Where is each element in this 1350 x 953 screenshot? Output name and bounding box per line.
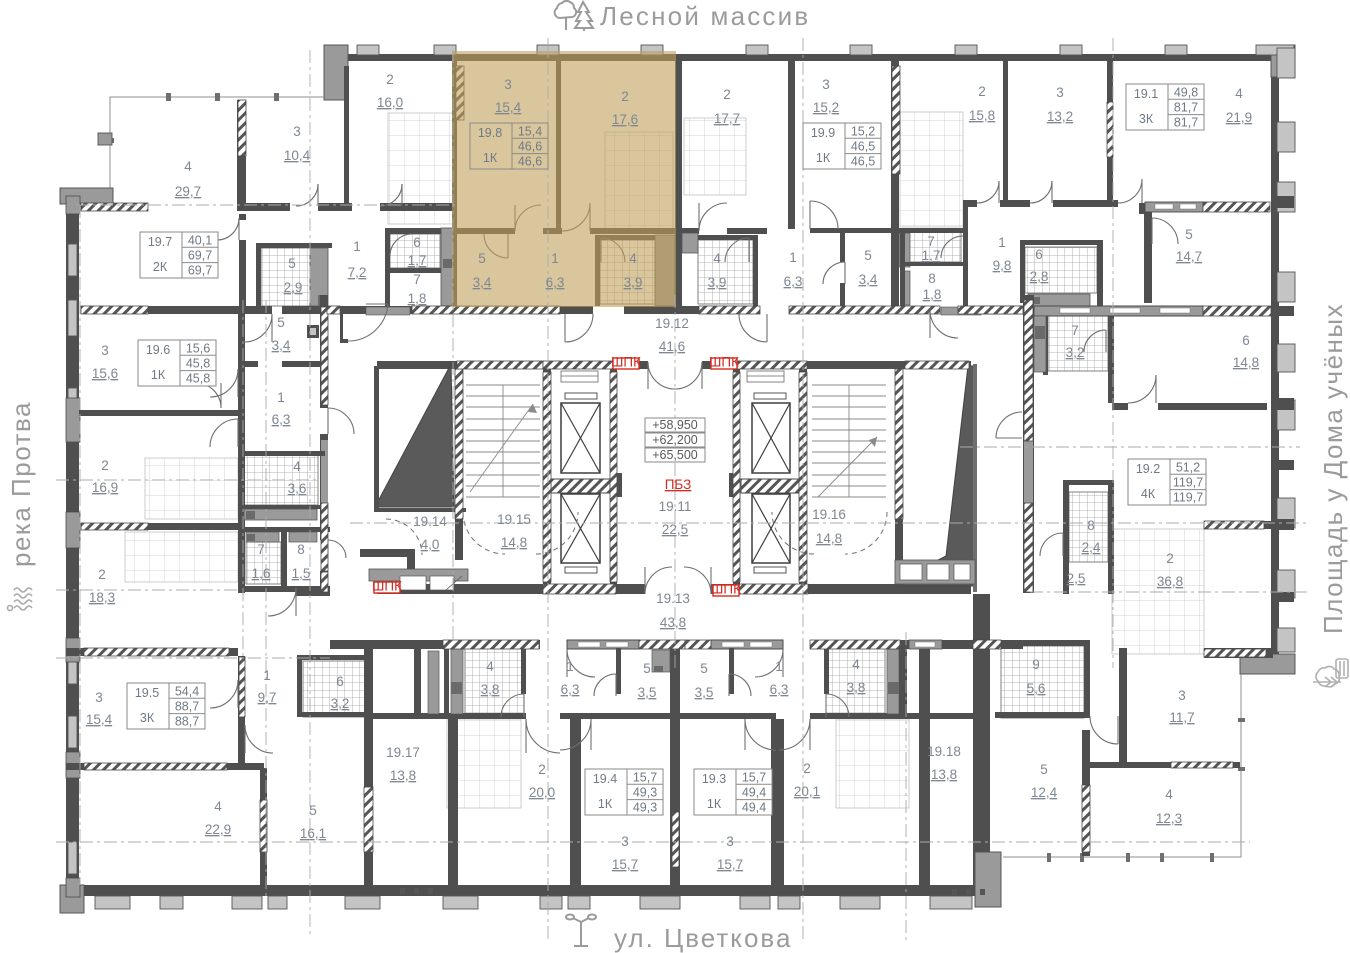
svg-text:15,4: 15,4 [518, 125, 542, 139]
svg-text:15,6: 15,6 [92, 366, 118, 381]
svg-text:16,1: 16,1 [300, 826, 326, 841]
svg-text:3: 3 [621, 834, 629, 849]
svg-text:49,4: 49,4 [742, 786, 766, 800]
svg-text:45,8: 45,8 [186, 372, 210, 386]
svg-text:4: 4 [1235, 86, 1243, 101]
svg-text:3,4: 3,4 [473, 275, 492, 290]
svg-text:14,8: 14,8 [501, 535, 527, 550]
svg-text:4: 4 [214, 799, 222, 814]
svg-text:8: 8 [1087, 518, 1095, 533]
svg-text:1,6: 1,6 [252, 566, 271, 581]
svg-text:19.13: 19.13 [656, 591, 690, 606]
svg-text:46,6: 46,6 [518, 155, 542, 169]
svg-text:3,2: 3,2 [331, 696, 350, 711]
svg-text:ПБЗ: ПБЗ [665, 477, 692, 492]
svg-text:1К: 1К [816, 151, 831, 165]
svg-text:3,2: 3,2 [1066, 345, 1085, 360]
svg-text:9,7: 9,7 [258, 690, 277, 705]
svg-text:88,7: 88,7 [175, 715, 199, 729]
svg-text:17,7: 17,7 [714, 111, 740, 126]
svg-text:ШПК: ШПК [372, 579, 402, 594]
svg-text:8: 8 [928, 271, 936, 286]
svg-text:3,8: 3,8 [481, 682, 500, 697]
svg-text:51,2: 51,2 [1176, 461, 1200, 475]
svg-text:16,0: 16,0 [377, 95, 403, 110]
svg-text:1К: 1К [598, 797, 613, 811]
svg-text:2К: 2К [153, 260, 168, 274]
svg-text:6,3: 6,3 [770, 682, 789, 697]
svg-text:12,4: 12,4 [1031, 785, 1058, 800]
svg-text:ШПК: ШПК [709, 355, 739, 370]
svg-text:13,8: 13,8 [931, 767, 957, 782]
svg-text:15,4: 15,4 [495, 100, 522, 115]
svg-text:12,3: 12,3 [1156, 811, 1182, 826]
svg-text:14,7: 14,7 [1176, 249, 1202, 264]
svg-text:3: 3 [1178, 688, 1186, 703]
svg-text:9: 9 [1032, 657, 1040, 672]
svg-text:+58,950: +58,950 [652, 418, 698, 432]
svg-text:7: 7 [413, 272, 421, 287]
svg-text:3: 3 [95, 690, 103, 705]
svg-text:4: 4 [293, 459, 301, 474]
svg-text:11,7: 11,7 [1169, 710, 1194, 725]
svg-text:2: 2 [98, 567, 106, 582]
svg-text:19.14: 19.14 [413, 514, 447, 529]
svg-text:ул. Цветкова: ул. Цветкова [614, 923, 792, 953]
svg-text:5: 5 [700, 661, 708, 676]
svg-text:3,5: 3,5 [695, 685, 714, 700]
svg-text:4К: 4К [1141, 487, 1156, 501]
svg-text:69,7: 69,7 [188, 249, 212, 263]
svg-text:19.3: 19.3 [702, 772, 726, 786]
svg-text:2: 2 [723, 87, 731, 102]
svg-text:1,8: 1,8 [408, 291, 427, 306]
svg-text:20,1: 20,1 [794, 784, 820, 799]
svg-text:81,7: 81,7 [1174, 101, 1198, 115]
svg-text:88,7: 88,7 [175, 700, 199, 714]
svg-text:Лесной массив: Лесной массив [600, 1, 810, 31]
svg-text:5: 5 [309, 803, 317, 818]
svg-text:4: 4 [713, 251, 721, 266]
svg-text:1: 1 [566, 659, 574, 674]
svg-text:14,8: 14,8 [1233, 355, 1259, 370]
svg-text:21,9: 21,9 [1226, 110, 1252, 125]
svg-text:13,2: 13,2 [1047, 109, 1073, 124]
svg-text:19.11: 19.11 [659, 499, 692, 514]
svg-text:22,9: 22,9 [205, 822, 231, 837]
svg-text:19.12: 19.12 [655, 316, 689, 331]
svg-text:6: 6 [1035, 247, 1043, 262]
svg-text:49,4: 49,4 [742, 801, 766, 815]
svg-text:1: 1 [551, 251, 559, 266]
svg-text:1: 1 [263, 668, 271, 683]
svg-text:19.2: 19.2 [1136, 462, 1160, 476]
svg-text:45,8: 45,8 [186, 357, 210, 371]
svg-text:1,7: 1,7 [408, 253, 427, 268]
svg-text:6: 6 [336, 674, 344, 689]
svg-text:1: 1 [775, 659, 783, 674]
svg-text:2: 2 [978, 84, 986, 99]
svg-text:7,2: 7,2 [348, 265, 367, 280]
svg-text:3: 3 [1056, 85, 1064, 100]
svg-text:36,8: 36,8 [1157, 574, 1183, 589]
svg-text:3: 3 [101, 343, 109, 358]
svg-text:2: 2 [803, 761, 811, 776]
svg-text:5: 5 [864, 248, 872, 263]
svg-text:49,3: 49,3 [633, 801, 657, 815]
svg-text:69,7: 69,7 [188, 264, 212, 278]
svg-text:6,3: 6,3 [546, 275, 565, 290]
svg-text:1: 1 [998, 235, 1006, 250]
svg-text:+62,200: +62,200 [652, 433, 698, 447]
svg-text:119,7: 119,7 [1173, 476, 1203, 490]
svg-text:2: 2 [621, 89, 629, 104]
svg-text:3: 3 [504, 77, 512, 92]
svg-text:5,6: 5,6 [1027, 681, 1046, 696]
svg-text:Площадь у Дома учёных: Площадь у Дома учёных [1318, 303, 1348, 634]
svg-text:8: 8 [297, 542, 305, 557]
svg-text:4: 4 [852, 657, 860, 672]
svg-text:15,7: 15,7 [717, 857, 743, 872]
svg-text:1К: 1К [707, 797, 722, 811]
svg-text:2: 2 [386, 72, 394, 87]
svg-text:2,5: 2,5 [1067, 571, 1086, 586]
svg-text:5: 5 [277, 315, 285, 330]
svg-text:15,8: 15,8 [969, 108, 995, 123]
svg-text:15,7: 15,7 [612, 857, 638, 872]
svg-text:13,8: 13,8 [390, 768, 416, 783]
svg-text:9,8: 9,8 [993, 258, 1012, 273]
svg-text:4: 4 [1165, 787, 1173, 802]
svg-text:19.16: 19.16 [812, 507, 846, 522]
svg-text:40,1: 40,1 [188, 234, 212, 248]
svg-text:4: 4 [486, 659, 494, 674]
svg-text:19.6: 19.6 [146, 343, 170, 357]
svg-text:29,7: 29,7 [175, 184, 201, 199]
svg-text:7: 7 [927, 234, 935, 249]
svg-text:6,3: 6,3 [784, 274, 803, 289]
svg-text:5: 5 [478, 251, 486, 266]
svg-text:54,4: 54,4 [175, 685, 199, 699]
svg-text:3,9: 3,9 [624, 275, 643, 290]
svg-text:2: 2 [101, 458, 109, 473]
svg-text:5: 5 [288, 256, 296, 271]
svg-text:43,8: 43,8 [660, 615, 686, 630]
svg-text:3,8: 3,8 [847, 680, 866, 695]
svg-text:3,4: 3,4 [859, 272, 878, 287]
svg-text:3К: 3К [140, 711, 155, 725]
svg-text:20,0: 20,0 [529, 785, 555, 800]
svg-text:5: 5 [1040, 762, 1048, 777]
svg-text:3,6: 3,6 [288, 481, 307, 496]
svg-text:2,9: 2,9 [284, 280, 303, 295]
svg-text:1,5: 1,5 [292, 566, 311, 581]
svg-text:6: 6 [413, 235, 421, 250]
svg-text:4: 4 [629, 251, 637, 266]
svg-text:5: 5 [1185, 227, 1193, 242]
svg-text:+65,500: +65,500 [652, 448, 698, 462]
svg-text:10,4: 10,4 [284, 148, 311, 163]
svg-text:19.18: 19.18 [927, 744, 961, 759]
svg-text:2: 2 [538, 762, 546, 777]
svg-text:16,9: 16,9 [92, 480, 118, 495]
svg-text:3,9: 3,9 [708, 275, 727, 290]
svg-text:49,8: 49,8 [1174, 86, 1198, 100]
svg-text:1: 1 [353, 239, 361, 254]
svg-text:1: 1 [789, 250, 797, 265]
svg-text:1,7: 1,7 [922, 248, 941, 263]
svg-text:19.9: 19.9 [811, 126, 835, 140]
svg-text:ШПК: ШПК [711, 582, 741, 597]
svg-text:6: 6 [1242, 333, 1250, 348]
svg-text:46,5: 46,5 [851, 155, 875, 169]
svg-text:15,2: 15,2 [813, 100, 839, 115]
svg-text:19.17: 19.17 [386, 745, 420, 760]
svg-text:2,4: 2,4 [1082, 540, 1101, 555]
svg-text:5: 5 [643, 661, 651, 676]
svg-text:19.15: 19.15 [497, 512, 531, 527]
svg-text:3: 3 [822, 77, 830, 92]
svg-text:7: 7 [1071, 323, 1079, 338]
svg-text:15,4: 15,4 [86, 712, 113, 727]
svg-text:1,8: 1,8 [923, 287, 942, 302]
svg-text:22,5: 22,5 [662, 522, 688, 537]
svg-text:14,8: 14,8 [816, 531, 842, 546]
svg-text:река Протва: река Протва [6, 401, 36, 567]
svg-text:119,7: 119,7 [1173, 491, 1203, 505]
svg-text:2,8: 2,8 [1030, 269, 1049, 284]
svg-text:6,3: 6,3 [272, 412, 291, 427]
svg-text:2: 2 [1166, 551, 1174, 566]
svg-text:19.8: 19.8 [478, 126, 502, 140]
svg-text:ШПК: ШПК [611, 355, 641, 370]
svg-text:19.1: 19.1 [1134, 87, 1158, 101]
svg-text:1: 1 [277, 390, 285, 405]
svg-text:19.4: 19.4 [593, 772, 617, 786]
svg-text:4,0: 4,0 [421, 537, 440, 552]
svg-text:19.5: 19.5 [135, 686, 159, 700]
svg-text:3,4: 3,4 [272, 338, 291, 353]
svg-text:3К: 3К [1139, 112, 1154, 126]
svg-text:18,3: 18,3 [89, 590, 115, 605]
svg-text:7: 7 [257, 542, 265, 557]
svg-text:15,7: 15,7 [633, 771, 657, 785]
svg-text:15,2: 15,2 [851, 125, 875, 139]
svg-text:46,6: 46,6 [518, 140, 542, 154]
svg-text:17,6: 17,6 [612, 112, 638, 127]
svg-text:49,3: 49,3 [633, 786, 657, 800]
svg-text:3,5: 3,5 [638, 685, 657, 700]
svg-text:46,5: 46,5 [851, 140, 875, 154]
svg-text:1К: 1К [151, 368, 166, 382]
svg-text:4: 4 [184, 159, 192, 174]
svg-text:81,7: 81,7 [1174, 116, 1198, 130]
svg-text:15,7: 15,7 [742, 771, 766, 785]
svg-text:19.7: 19.7 [148, 235, 172, 249]
svg-text:1К: 1К [483, 151, 498, 165]
svg-text:3: 3 [293, 124, 301, 139]
svg-text:3: 3 [726, 834, 734, 849]
svg-text:6,3: 6,3 [561, 682, 580, 697]
svg-text:41,6: 41,6 [659, 339, 685, 354]
svg-text:15,6: 15,6 [186, 342, 210, 356]
